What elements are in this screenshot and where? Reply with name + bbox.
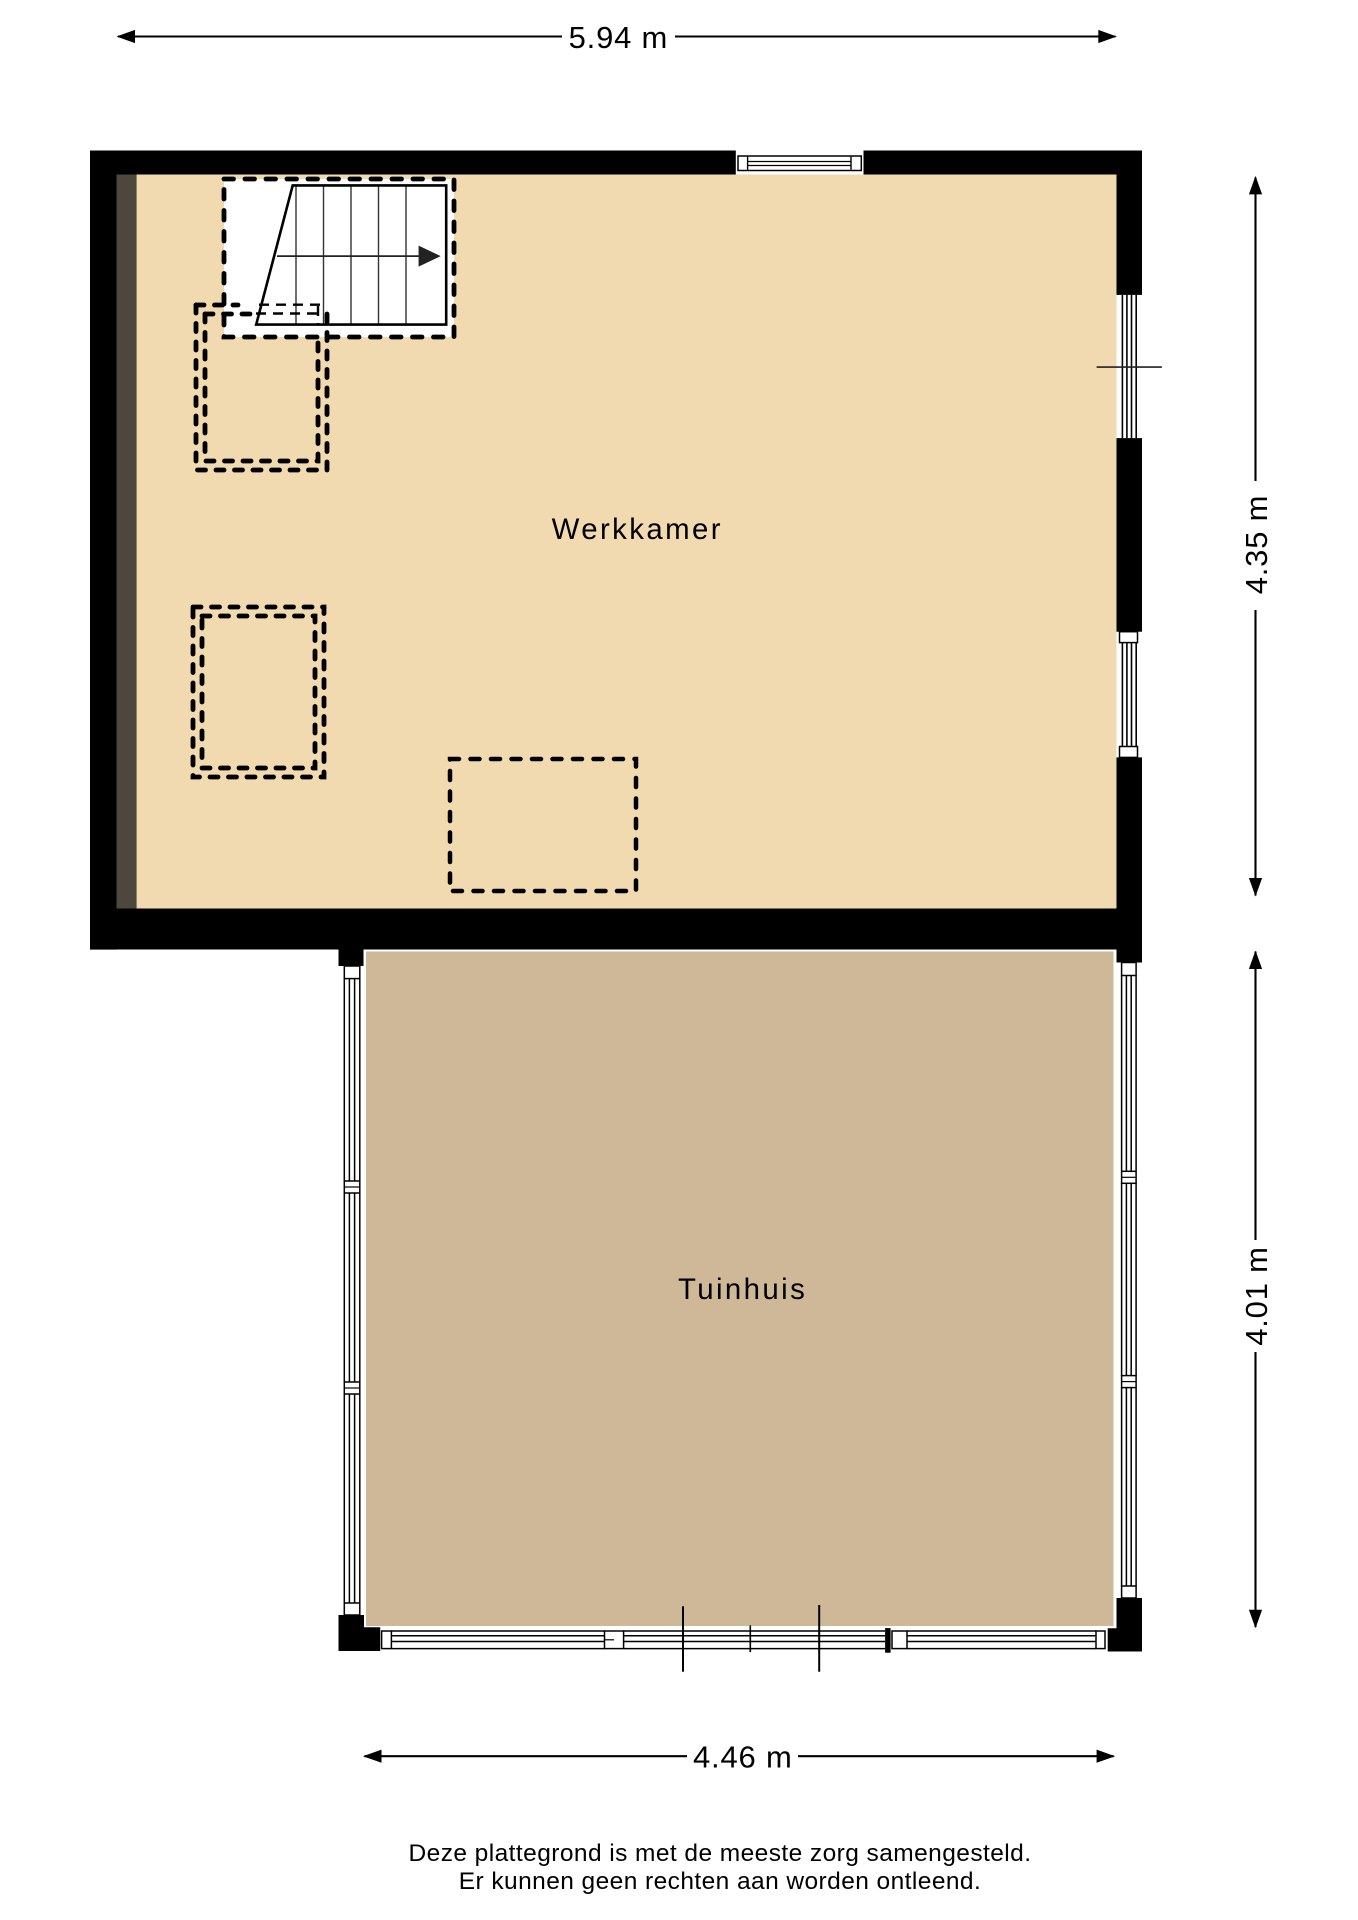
- svg-text:Werkkamer: Werkkamer: [552, 513, 723, 546]
- svg-text:4.01 m: 4.01 m: [1239, 1246, 1274, 1346]
- svg-text:Er kunnen geen rechten aan wor: Er kunnen geen rechten aan worden ontlee…: [459, 1868, 981, 1895]
- svg-text:Deze plattegrond is met de mee: Deze plattegrond is met de meeste zorg s…: [409, 1840, 1032, 1867]
- svg-text:4.46 m: 4.46 m: [693, 1740, 793, 1775]
- svg-text:5.94 m: 5.94 m: [569, 20, 669, 55]
- svg-text:Tuinhuis: Tuinhuis: [678, 1273, 807, 1306]
- svg-text:4.35 m: 4.35 m: [1239, 495, 1274, 595]
